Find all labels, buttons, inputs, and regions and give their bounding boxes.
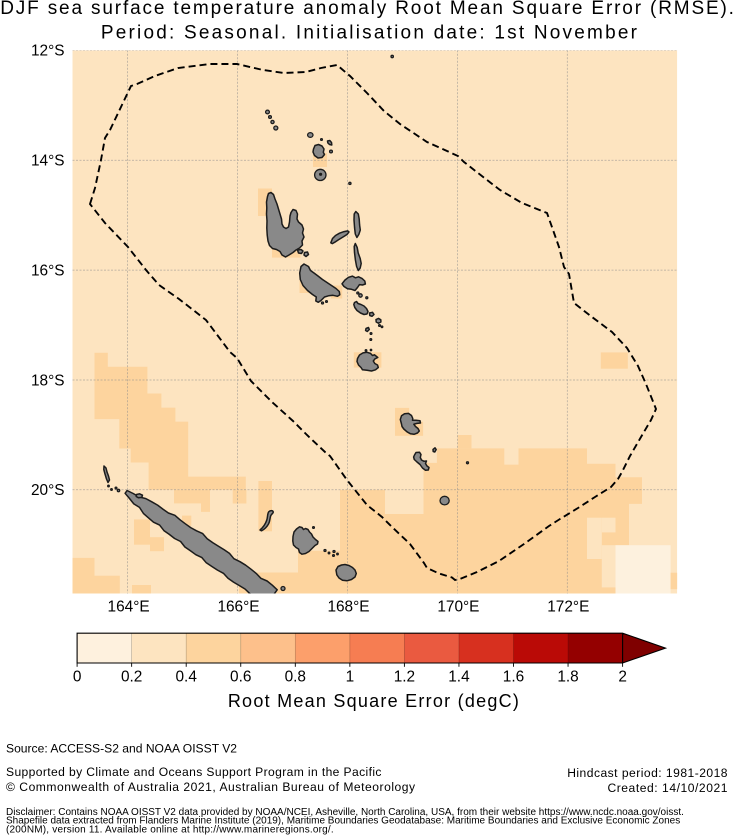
svg-text:1: 1 <box>346 668 355 685</box>
svg-text:© Commonwealth of Australia 20: © Commonwealth of Australia 2021, Austra… <box>6 780 416 794</box>
svg-text:16°S: 16°S <box>31 262 65 279</box>
svg-text:1.2: 1.2 <box>394 668 415 685</box>
svg-text:0.8: 0.8 <box>285 668 306 685</box>
svg-text:12°S: 12°S <box>31 43 65 60</box>
svg-text:170°E: 170°E <box>437 599 479 616</box>
svg-text:2: 2 <box>618 668 627 685</box>
svg-text:Period: Seasonal. Initialisati: Period: Seasonal. Initialisation date: 1… <box>101 23 639 44</box>
svg-text:20°S: 20°S <box>31 482 65 499</box>
svg-text:18°S: 18°S <box>31 372 65 389</box>
svg-text:Supported by Climate and Ocean: Supported by Climate and Oceans Support … <box>6 765 382 779</box>
svg-text:Hindcast period: 1981-2018: Hindcast period: 1981-2018 <box>567 766 728 780</box>
svg-text:0.4: 0.4 <box>175 668 197 685</box>
svg-text:Source: ACCESS-S2 and NOAA OIS: Source: ACCESS-S2 and NOAA OISST V2 <box>6 741 237 755</box>
svg-text:168°E: 168°E <box>327 599 369 616</box>
svg-text:166°E: 166°E <box>217 599 259 616</box>
svg-text:0.6: 0.6 <box>230 668 251 685</box>
svg-text:1.4: 1.4 <box>448 668 470 685</box>
svg-text:1.8: 1.8 <box>557 668 578 685</box>
svg-text:0.2: 0.2 <box>121 668 142 685</box>
svg-text:14°S: 14°S <box>31 153 65 170</box>
svg-text:Created: 14/10/2021: Created: 14/10/2021 <box>607 781 728 795</box>
svg-text:DJF sea surface temperature an: DJF sea surface temperature anomaly Root… <box>0 0 736 19</box>
svg-text:172°E: 172°E <box>547 599 589 616</box>
svg-text:0: 0 <box>73 668 82 685</box>
svg-text:(200NM), version 11. Available: (200NM), version 11. Available online at… <box>6 824 334 835</box>
svg-text:Root Mean Square Error (degC): Root Mean Square Error (degC) <box>228 691 520 711</box>
svg-text:164°E: 164°E <box>108 599 150 616</box>
svg-text:1.6: 1.6 <box>503 668 524 685</box>
